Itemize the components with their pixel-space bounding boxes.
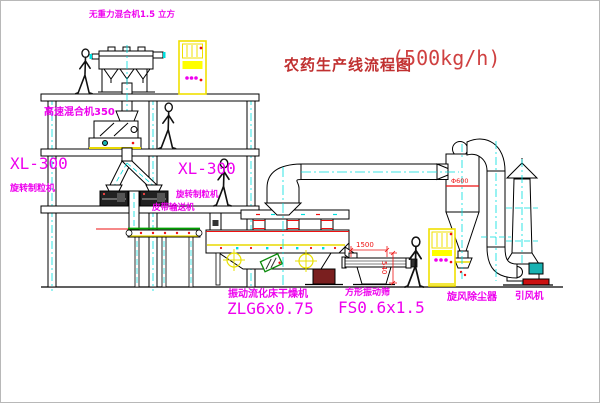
discharge-pipe (129, 191, 139, 229)
fluid-bed-dryer (206, 210, 357, 285)
fan-motor (529, 263, 543, 274)
cabinet-knob (185, 76, 189, 80)
cyclone-label: 旋风除尘器 (447, 293, 497, 304)
high-speed-mixer-label: 高速混合机350 (44, 108, 115, 119)
screen-height-dimension: 540 (380, 261, 387, 274)
screen-length-dimension: 1500 (356, 242, 374, 249)
fan-label: 引风机 (515, 292, 544, 302)
screen-model-label: FS0.6x1.5 (338, 300, 425, 316)
granulator-mid-model-label: XL-300 (178, 161, 236, 177)
person-figure (159, 103, 176, 149)
control-cabinet-upper (179, 41, 206, 94)
flow-diagram-canvas: 农药生产线流程图 (500kg/h) 无重力混合机1.5 立方 高速混合机350… (0, 0, 600, 403)
cabinet-knob (434, 258, 438, 262)
granulator-left-model-label: XL-300 (10, 156, 68, 172)
granulator-left (100, 185, 128, 206)
cyclone-diameter-note: Φ600 (451, 178, 469, 185)
dryer-model-label: ZLG6x0.75 (227, 301, 314, 317)
granulator-mid-name-label: 旋转制粒机 (176, 191, 219, 200)
gravity-free-mixer-label: 无重力混合机1.5 立方 (89, 11, 175, 20)
granulator-left-name-label: 旋转制粒机 (10, 185, 55, 194)
belt-conveyor-label: 皮带输送机 (152, 204, 195, 213)
diagram-title-capacity: (500kg/h) (392, 46, 500, 70)
control-cabinet-lower (429, 229, 455, 286)
